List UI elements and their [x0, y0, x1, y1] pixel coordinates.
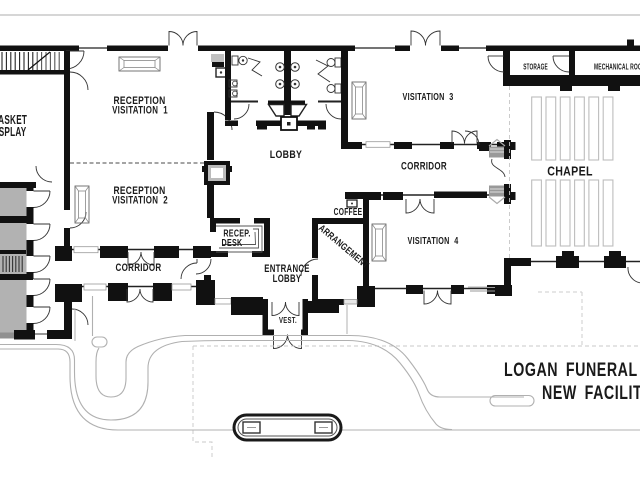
svg-text:VISITATION 1: VISITATION 1 [112, 104, 168, 117]
svg-text:MECHANICAL ROOM: MECHANICAL ROOM [594, 64, 640, 72]
svg-text:LOGAN FUNERAL: LOGAN FUNERAL [504, 359, 638, 381]
svg-text:CHAPEL: CHAPEL [547, 165, 593, 179]
svg-text:LOBBY: LOBBY [273, 273, 302, 286]
svg-text:CORRIDOR: CORRIDOR [115, 262, 161, 275]
svg-text:VISITATION 3: VISITATION 3 [402, 91, 453, 102]
svg-text:VISITATION 4: VISITATION 4 [407, 235, 458, 246]
svg-text:LOBBY: LOBBY [270, 149, 302, 161]
svg-text:COFFEE: COFFEE [334, 206, 363, 218]
svg-text:STORAGE: STORAGE [523, 63, 548, 71]
svg-text:DISPLAY: DISPLAY [0, 125, 27, 139]
svg-text:CORRIDOR: CORRIDOR [401, 160, 447, 173]
svg-text:VISITATION 2: VISITATION 2 [112, 194, 168, 207]
svg-text:DESK: DESK [222, 237, 243, 249]
svg-text:NEW FACILITY: NEW FACILITY [542, 382, 640, 404]
svg-text:VEST.: VEST. [279, 315, 297, 325]
